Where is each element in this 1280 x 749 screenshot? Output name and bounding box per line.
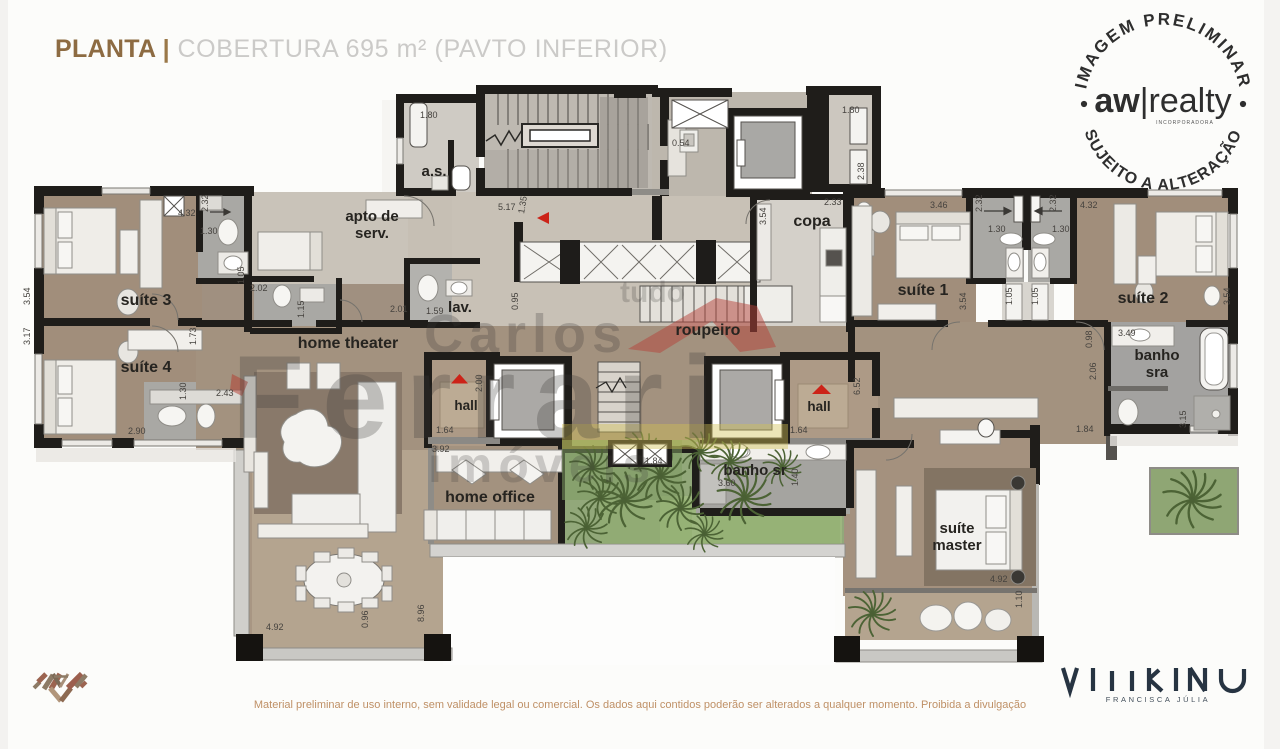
svg-text:6.52: 6.52 — [852, 377, 862, 395]
svg-text:3.92: 3.92 — [432, 444, 450, 454]
svg-text:8.96: 8.96 — [416, 604, 426, 622]
svg-text:master: master — [932, 537, 981, 554]
svg-text:1.30: 1.30 — [988, 224, 1006, 234]
svg-text:suíte 1: suíte 1 — [898, 282, 949, 299]
svg-text:apto de: apto de — [345, 208, 398, 225]
svg-text:2.06: 2.06 — [1088, 362, 1098, 380]
svg-text:INCORPORADORA: INCORPORADORA — [1156, 120, 1214, 126]
svg-text:1.30: 1.30 — [1052, 224, 1070, 234]
svg-text:4.92: 4.92 — [990, 574, 1008, 584]
svg-text:1.80: 1.80 — [842, 105, 860, 115]
svg-text:copa: copa — [793, 213, 830, 230]
svg-text:FRANCISCA JÚLIA: FRANCISCA JÚLIA — [1106, 695, 1210, 704]
svg-text:2.33: 2.33 — [824, 197, 842, 207]
svg-text:1.10: 1.10 — [1014, 590, 1024, 608]
svg-text:4.92: 4.92 — [266, 622, 284, 632]
svg-text:1.15: 1.15 — [296, 300, 306, 318]
svg-text:imóveis: imóveis — [428, 437, 656, 493]
svg-text:1.64: 1.64 — [790, 425, 808, 435]
svg-text:suíte 4: suíte 4 — [121, 359, 172, 376]
svg-text:home office: home office — [445, 489, 535, 506]
svg-text:2.00: 2.00 — [474, 374, 484, 392]
svg-text:2.32: 2.32 — [200, 194, 210, 212]
svg-text:0.96: 0.96 — [360, 610, 370, 628]
svg-text:2.32: 2.32 — [1048, 194, 1058, 212]
svg-text:0.54: 0.54 — [672, 138, 690, 148]
svg-text:home theater: home theater — [298, 335, 398, 352]
svg-text:2.32: 2.32 — [974, 194, 984, 212]
svg-text:tudo: tudo — [620, 276, 685, 309]
svg-text:5.17: 5.17 — [498, 202, 516, 212]
svg-text:serv.: serv. — [355, 225, 389, 242]
svg-text:3.15: 3.15 — [1178, 410, 1188, 428]
svg-text:1.80: 1.80 — [420, 110, 438, 120]
svg-text:1.30: 1.30 — [200, 226, 218, 236]
svg-text:1.84: 1.84 — [645, 456, 663, 466]
svg-text:hall: hall — [807, 399, 830, 414]
svg-text:suíte 3: suíte 3 — [121, 292, 172, 309]
svg-text:1.05: 1.05 — [1004, 287, 1014, 305]
svg-text:4.32: 4.32 — [1080, 200, 1098, 210]
svg-text:banho: banho — [1135, 347, 1180, 364]
svg-text:suíte 2: suíte 2 — [1118, 290, 1169, 307]
svg-text:2.38: 2.38 — [856, 162, 866, 180]
svg-text:0.98: 0.98 — [1084, 330, 1094, 348]
svg-text:1.64: 1.64 — [436, 425, 454, 435]
svg-text:3.54: 3.54 — [22, 287, 32, 305]
svg-text:3.54: 3.54 — [758, 207, 768, 225]
svg-text:1.05: 1.05 — [1030, 287, 1040, 305]
svg-text:banho sr: banho sr — [723, 462, 787, 479]
svg-text:2.43: 2.43 — [216, 388, 234, 398]
svg-text:1.59: 1.59 — [426, 306, 444, 316]
svg-text:suíte: suíte — [939, 520, 974, 537]
svg-text:PLANTA | COBERTURA 695 m² (PAV: PLANTA | COBERTURA 695 m² (PAVTO INFERIO… — [55, 35, 668, 63]
svg-text:3.54: 3.54 — [958, 292, 968, 310]
svg-text:4.32: 4.32 — [178, 208, 196, 218]
svg-text:1.30: 1.30 — [178, 382, 188, 400]
svg-text:3.60: 3.60 — [718, 478, 736, 488]
svg-text:2.02: 2.02 — [250, 283, 268, 293]
svg-text:0.95: 0.95 — [510, 292, 520, 310]
svg-text:1.73: 1.73 — [188, 327, 198, 345]
svg-text:1.84: 1.84 — [1076, 424, 1094, 434]
svg-text:a.s.: a.s. — [421, 163, 446, 180]
svg-text:3.17: 3.17 — [22, 327, 32, 345]
svg-text:aw|realty: aw|realty — [1094, 82, 1231, 120]
svg-text:2.90: 2.90 — [128, 426, 146, 436]
svg-text:roupeiro: roupeiro — [676, 322, 741, 339]
svg-text:3.46: 3.46 — [930, 200, 948, 210]
svg-text:2.01: 2.01 — [390, 304, 408, 314]
svg-text:3.49: 3.49 — [1118, 328, 1136, 338]
svg-text:3.54: 3.54 — [1222, 287, 1232, 305]
svg-text:hall: hall — [454, 398, 477, 413]
svg-text:lav.: lav. — [448, 299, 472, 316]
svg-text:1.05: 1.05 — [236, 266, 246, 284]
svg-text:Material preliminar de uso int: Material preliminar de uso interno, sem … — [254, 699, 1026, 711]
svg-text:sra: sra — [1146, 364, 1169, 381]
svg-text:1.40: 1.40 — [790, 468, 800, 486]
